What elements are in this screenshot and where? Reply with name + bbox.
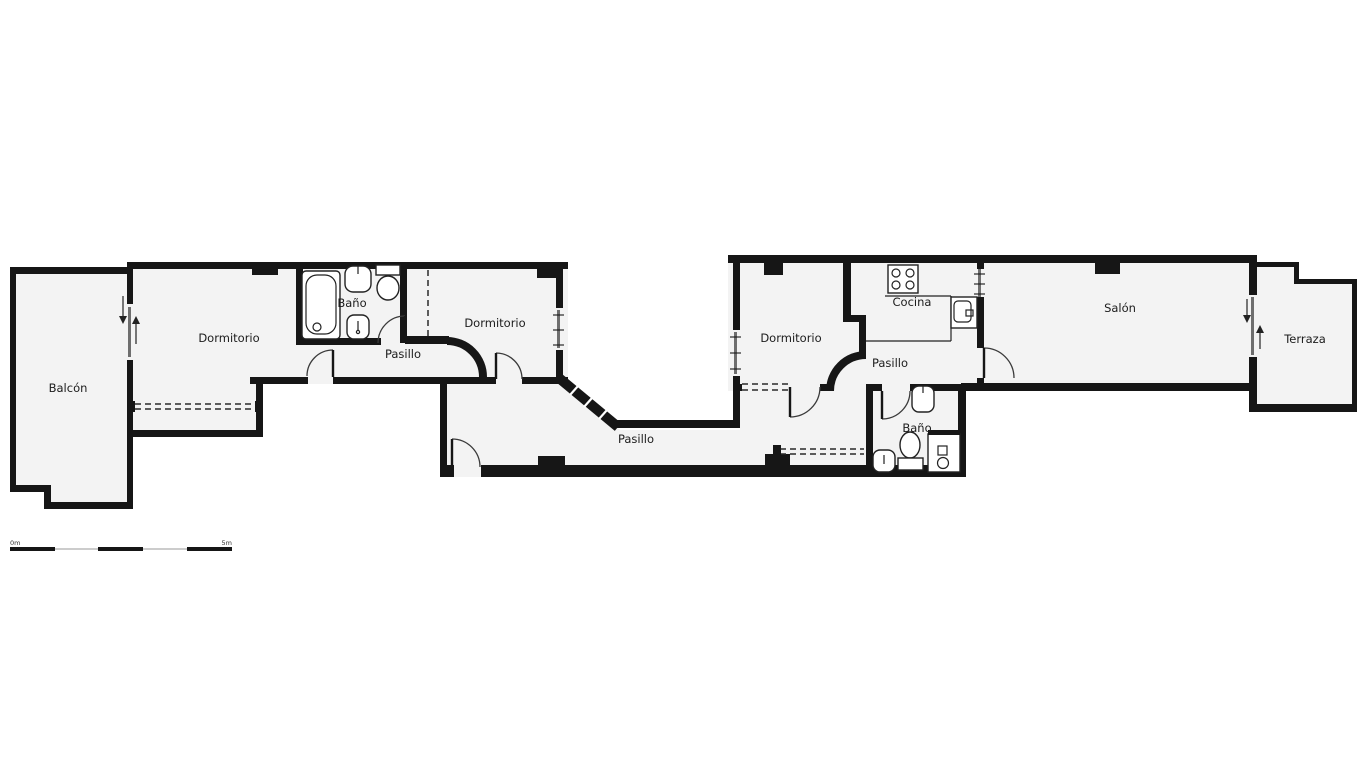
central-pillar-stub-1: [538, 456, 565, 467]
salon-east-wall-upper: [1249, 255, 1257, 295]
scale-segment: [10, 547, 55, 551]
toilet-icon: [900, 432, 920, 458]
central-wardrobe-endcap: [773, 445, 781, 457]
room-label-dormitorio-3: Dormitorio: [760, 331, 821, 345]
room-label-balcon: Balcón: [49, 381, 88, 395]
room-label-dormitorio-2: Dormitorio: [464, 316, 525, 330]
toilet-tank: [376, 265, 400, 275]
salon-terraza-slider: [1251, 297, 1254, 355]
scale-segment: [98, 547, 143, 551]
room-label-pasillo-left: Pasillo: [385, 347, 421, 361]
pasillo-left-south-wall-b: [333, 377, 496, 384]
cocina-jog-wall-v: [859, 319, 866, 357]
dorm1-wardrobe-endcap: [255, 401, 263, 412]
salon-east-wall-lower: [1249, 357, 1257, 412]
room-label-bano-1: Baño: [337, 296, 366, 310]
terraza-top-wall-b: [1294, 279, 1357, 284]
right-west-wall-lower: [733, 376, 740, 391]
toilet-icon: [377, 276, 399, 300]
scale-bar: 0m 5m: [10, 539, 232, 551]
balcon-window: [128, 307, 131, 357]
right-top-wall: [728, 255, 1257, 263]
cocina-dorm3-divider: [843, 262, 851, 319]
toilet-tank: [898, 458, 923, 470]
central-west-wall: [440, 384, 447, 477]
dorm2-window: [557, 310, 560, 348]
room-label-pasillo-right: Pasillo: [872, 356, 908, 370]
dorm1-wardrobe-endcap: [127, 401, 135, 412]
pillar-stub-2: [764, 263, 783, 275]
room-label-terraza: Terraza: [1283, 332, 1326, 346]
scale-end-label: 5m: [222, 539, 232, 547]
scale-segment: [187, 547, 232, 551]
terraza-bottom-wall: [1249, 404, 1357, 412]
salon-south-wall: [961, 383, 1257, 391]
washer-icon: [928, 434, 960, 472]
terraza-top-wall-a: [1253, 262, 1298, 267]
floor-plan: Balcón Dormitorio Baño Pasillo Dormitori…: [0, 0, 1366, 768]
closet-south-wall: [405, 336, 449, 344]
washer-top-edge: [928, 430, 960, 435]
dorm2-east-wall-lower: [556, 350, 563, 378]
cocina-window: [978, 269, 981, 297]
dorm2-east-wall-upper: [556, 262, 563, 308]
balcon-bottom-wall: [44, 502, 133, 509]
bano2-north-wall-w: [866, 384, 882, 391]
cocina-salon-divider-b: [977, 297, 984, 348]
right-west-wall-upper: [733, 263, 740, 330]
stove-icon: [888, 265, 918, 293]
central-connector-wall: [733, 391, 740, 422]
room-label-pasillo-central: Pasillo: [618, 432, 654, 446]
floor-plan-page: Balcón Dormitorio Baño Pasillo Dormitori…: [0, 0, 1366, 768]
cocina-salon-divider-a: [977, 255, 984, 269]
room-label-cocina: Cocina: [893, 295, 932, 309]
pillar-stub-1: [252, 262, 278, 275]
room-label-dormitorio-1: Dormitorio: [198, 331, 259, 345]
balcon-left-wall: [10, 267, 16, 491]
bano2-west-wall: [866, 384, 873, 477]
balcon-top-wall: [10, 267, 133, 274]
room-label-salon: Salón: [1104, 301, 1136, 315]
terraza-east-wall: [1352, 279, 1357, 412]
room-label-bano-2: Baño: [902, 421, 931, 435]
scale-start-label: 0m: [10, 539, 20, 547]
right-unit-floor: [728, 255, 1257, 391]
central-north-wall: [612, 420, 740, 428]
dorm1-south-wall: [127, 430, 263, 437]
salon-pillar-stub: [1095, 263, 1120, 274]
